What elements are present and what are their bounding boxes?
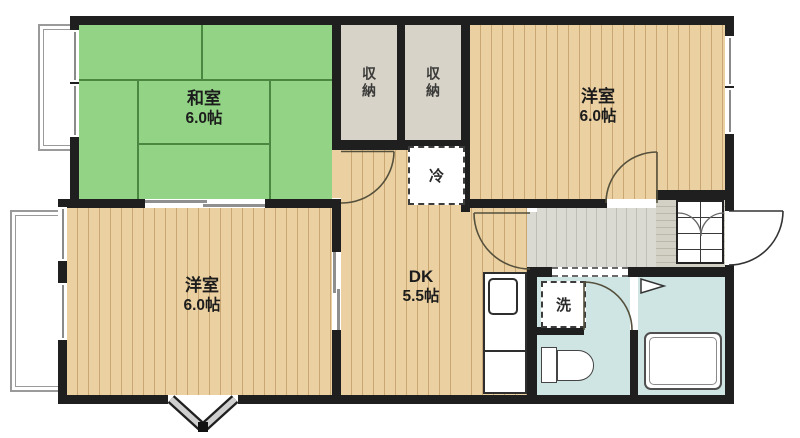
closet-right-label: 収納 bbox=[423, 66, 443, 100]
room-size: 6.0帖 bbox=[140, 296, 264, 315]
tatami-line bbox=[201, 25, 203, 81]
room-size: 5.5帖 bbox=[359, 287, 483, 306]
closet-left: 収納 bbox=[341, 25, 397, 140]
balcony-inner-line bbox=[43, 29, 71, 146]
window bbox=[725, 36, 734, 86]
room-name: 和室 bbox=[142, 88, 266, 109]
washroom-sliding-opening bbox=[552, 267, 628, 277]
tatami-line bbox=[137, 79, 139, 199]
wall bbox=[527, 267, 552, 277]
window bbox=[58, 283, 67, 340]
tatami-line bbox=[137, 143, 271, 145]
tatami-line bbox=[269, 79, 271, 199]
entrance-door-arc bbox=[729, 211, 783, 265]
doorway-washitsu-dk bbox=[332, 150, 341, 198]
kitchen-counter bbox=[483, 272, 527, 394]
sliding-door-yoshitsu-dk bbox=[332, 252, 341, 330]
wall bbox=[527, 267, 537, 404]
sliding-door-washitsu-yoshitsu bbox=[145, 199, 265, 208]
wall bbox=[527, 327, 584, 335]
washer-label: 洗 bbox=[556, 294, 571, 315]
refrigerator-label: 冷 bbox=[429, 165, 444, 186]
closet-right: 収納 bbox=[405, 25, 461, 140]
wall bbox=[70, 16, 734, 25]
closet-left-label: 収納 bbox=[359, 66, 379, 100]
refrigerator-box: 冷 bbox=[408, 146, 465, 205]
washer-box: 洗 bbox=[541, 281, 586, 328]
wall bbox=[461, 199, 607, 208]
wall bbox=[238, 395, 734, 404]
room-label-yoshitsu-lower: 洋室 6.0帖 bbox=[140, 275, 264, 316]
balcony-lower bbox=[10, 210, 64, 392]
counter-divider bbox=[485, 350, 525, 352]
tatami-line bbox=[79, 79, 332, 81]
room-size: 6.0帖 bbox=[142, 109, 266, 128]
window bbox=[70, 84, 79, 137]
bathtub bbox=[644, 332, 722, 390]
room-label-yoshitsu-upper: 洋室 6.0帖 bbox=[536, 86, 660, 127]
room-name: 洋室 bbox=[140, 275, 264, 296]
bathroom-door-opening bbox=[630, 277, 638, 330]
floor-plan: 収納 収納 冷 洗 bbox=[0, 0, 800, 438]
bathtub-inner bbox=[649, 337, 717, 385]
doorway-yoshitsu-upper bbox=[607, 199, 656, 208]
wall bbox=[630, 330, 638, 404]
room-label-dk: DK 5.5帖 bbox=[359, 266, 483, 307]
wall bbox=[628, 267, 734, 277]
wall bbox=[332, 208, 341, 252]
window bbox=[70, 30, 79, 82]
wall bbox=[656, 190, 734, 200]
room-label-washitsu: 和室 6.0帖 bbox=[142, 88, 266, 129]
balcony-inner-line bbox=[15, 215, 59, 387]
wall bbox=[397, 25, 405, 140]
entrance-door-opening bbox=[725, 211, 734, 265]
room-name: DK bbox=[359, 266, 483, 287]
doorway-dk-hall bbox=[527, 212, 537, 267]
window bbox=[725, 88, 734, 134]
kitchen-sink bbox=[488, 278, 518, 315]
toilet-tank bbox=[541, 347, 557, 383]
window bbox=[58, 207, 67, 261]
bay-door-opening bbox=[168, 395, 238, 404]
room-name: 洋室 bbox=[536, 86, 660, 107]
toilet-bowl bbox=[557, 350, 594, 381]
hallway-floor bbox=[537, 208, 656, 267]
room-size: 6.0帖 bbox=[536, 107, 660, 126]
wall bbox=[58, 395, 168, 404]
shoe-cabinet bbox=[676, 200, 724, 264]
wall bbox=[332, 16, 341, 150]
wall bbox=[332, 330, 341, 395]
